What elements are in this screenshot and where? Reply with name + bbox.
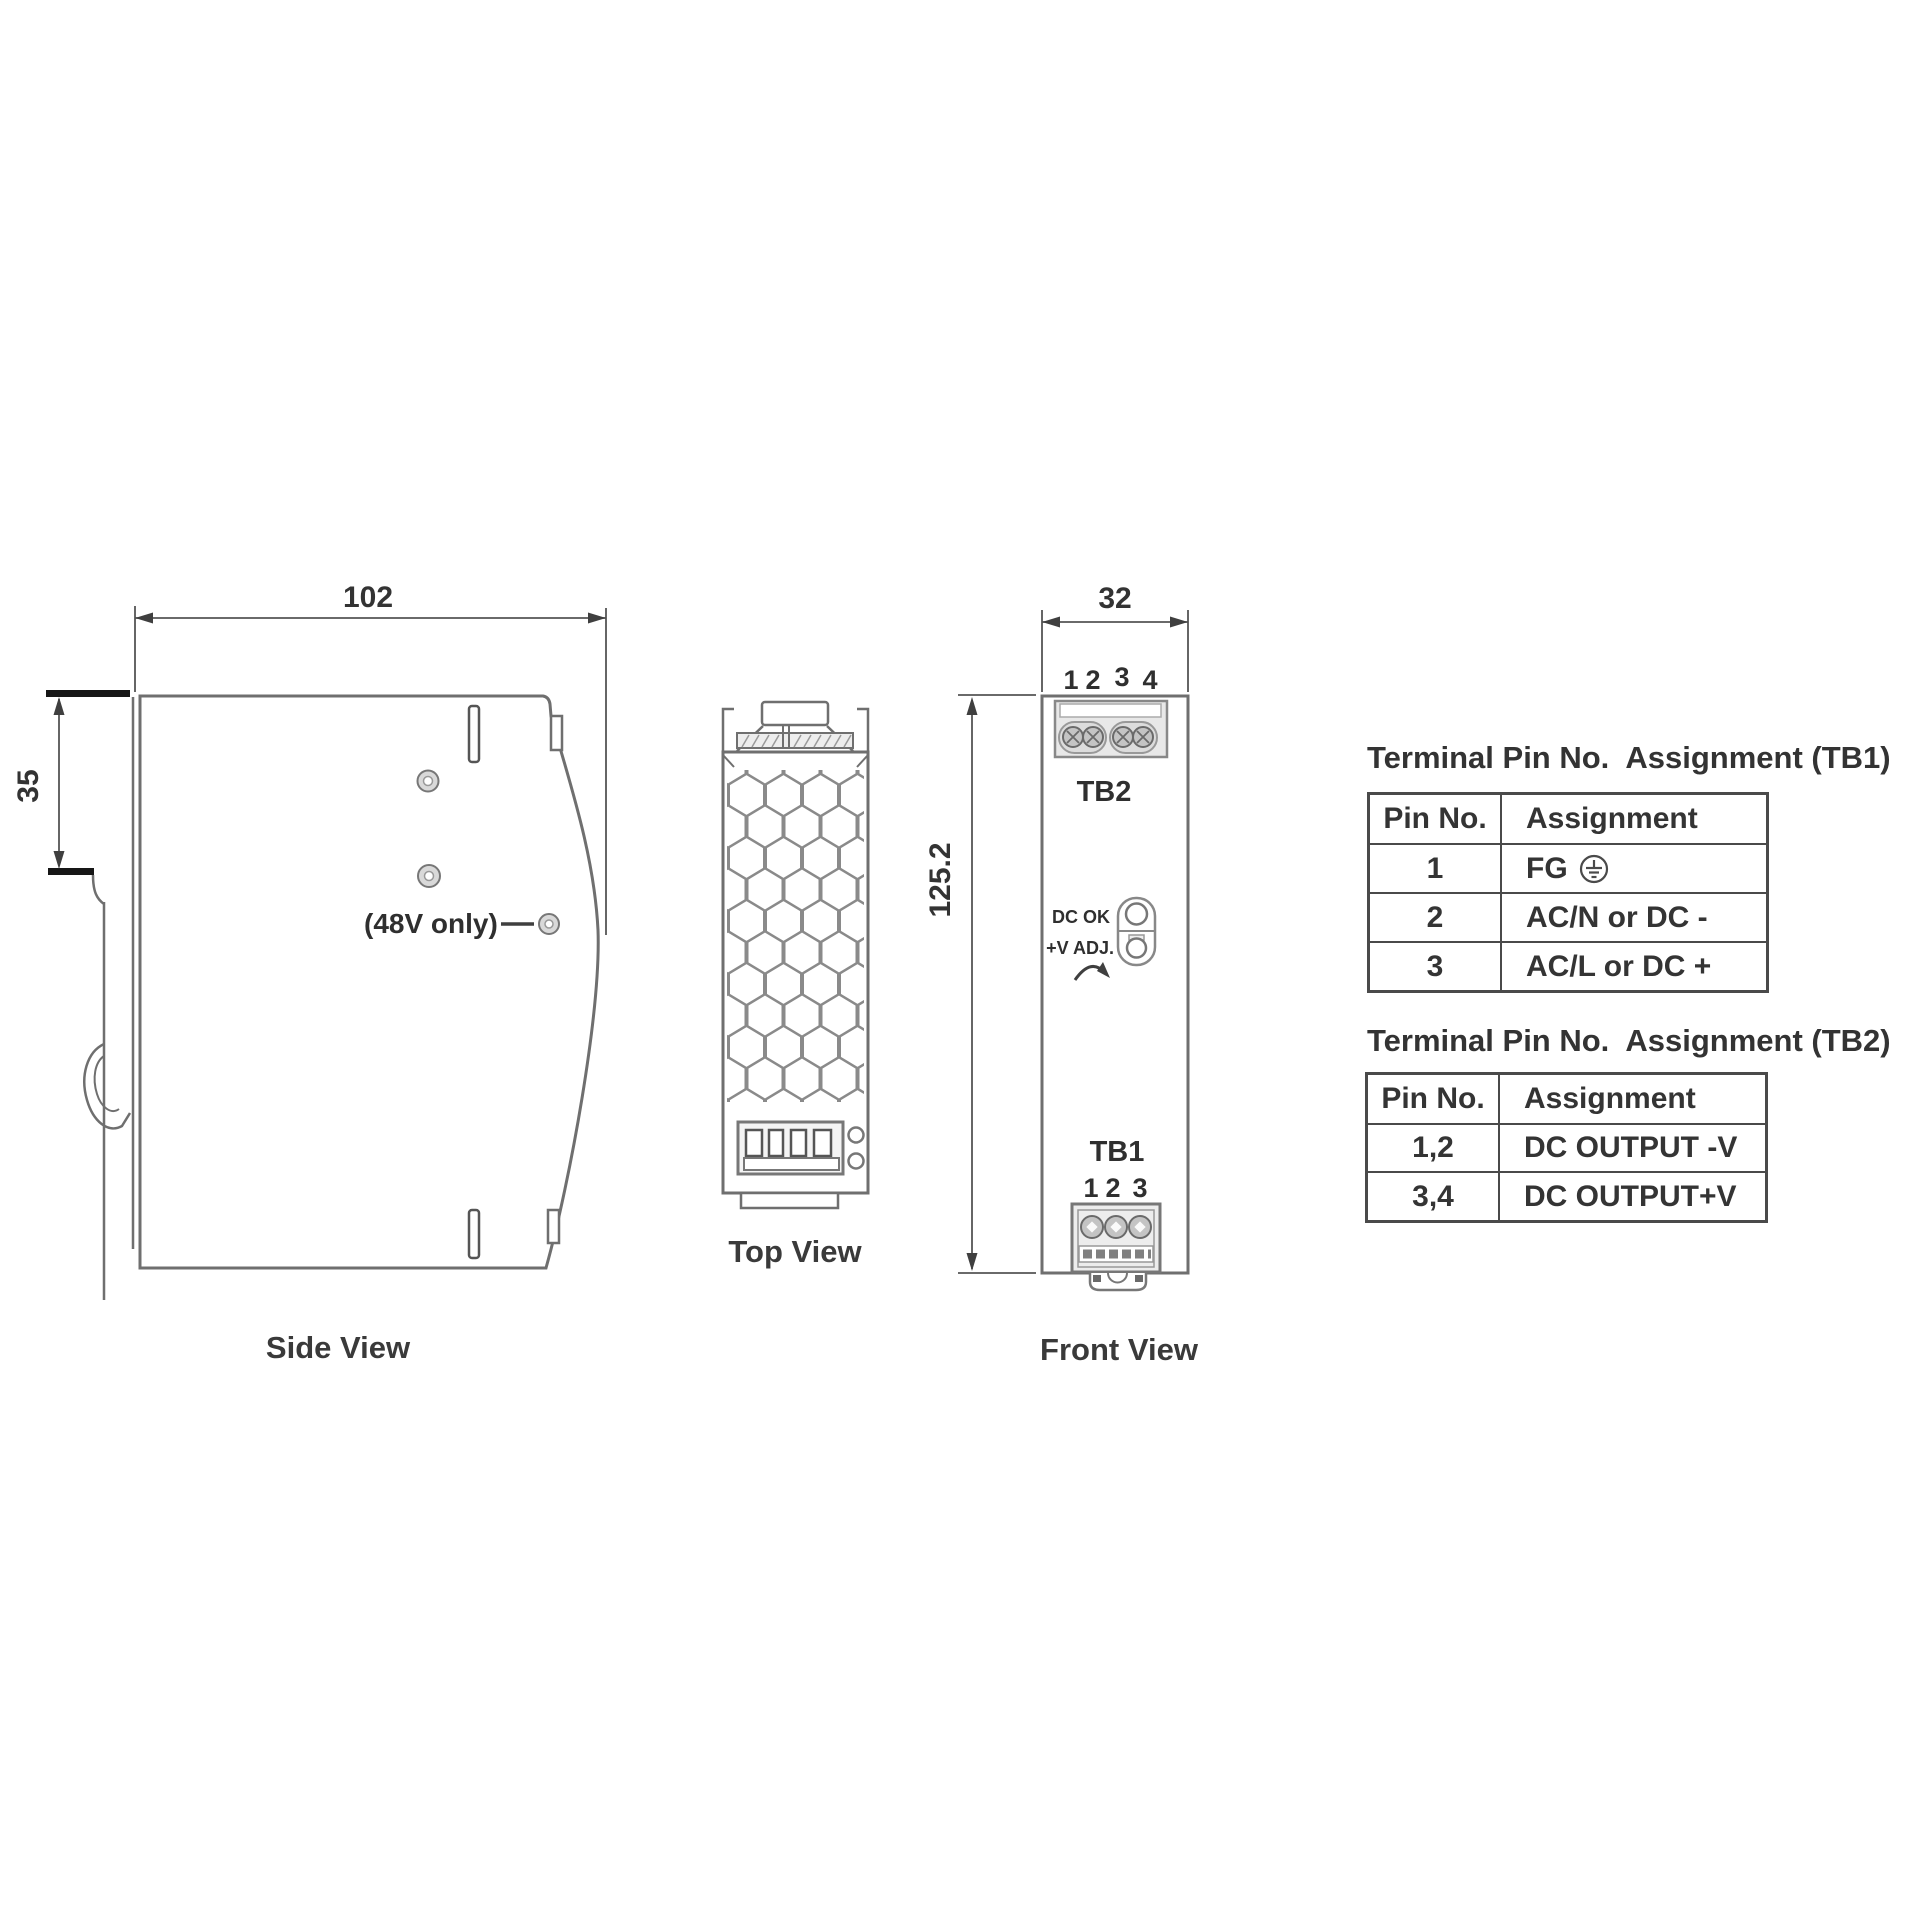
top-view-drawing: Top View (723, 702, 868, 1269)
din-rail-flange-top (46, 690, 130, 697)
tb1-label: TB1 (1090, 1136, 1145, 1168)
tb2-row-assignment: DC OUTPUT -V (1498, 1123, 1765, 1171)
side-view-label: Side View (266, 1330, 411, 1365)
front-view-label: Front View (1040, 1332, 1199, 1367)
side-case-tab-bottom (548, 1210, 559, 1243)
svg-text:2: 2 (1085, 665, 1100, 695)
tb1-header-pin: Pin No. (1370, 795, 1500, 843)
protective-earth-icon (1578, 853, 1610, 885)
svg-text:2: 2 (1105, 1173, 1120, 1203)
case-screw-48v (539, 914, 559, 934)
svg-text:4: 4 (1142, 665, 1157, 695)
v-adj-potentiometer (1127, 939, 1146, 958)
note-48v-only: (48V only) (364, 908, 498, 939)
tb1-row-pin: 3 (1370, 941, 1500, 990)
svg-text:35: 35 (12, 769, 45, 802)
front-view-drawing: 32 125.2 1 2 3 4 (924, 582, 1199, 1367)
side-vent-slot-top (469, 706, 479, 762)
side-view-drawing: (48V only) 102 35 Side View (12, 581, 606, 1365)
front-view-bottom-tab (1090, 1273, 1146, 1290)
tb1-pin-numbers: 1 2 3 (1083, 1173, 1147, 1203)
tb1-row-assignment: AC/L or DC + (1500, 941, 1766, 990)
tb1-row-assignment: AC/N or DC - (1500, 892, 1766, 941)
tb1-pin-assignment-table: Pin No. Assignment 1 FG 2 AC/N or DC - 3… (1367, 792, 1769, 993)
svg-text:DC OK: DC OK (1052, 907, 1110, 927)
top-view-label: Top View (728, 1234, 862, 1269)
tb2-row-assignment: DC OUTPUT+V (1498, 1171, 1765, 1220)
svg-text:32: 32 (1098, 582, 1131, 615)
tb1-table-title: Terminal Pin No. Assignment (TB1) (1367, 740, 1891, 776)
svg-text:+V ADJ.: +V ADJ. (1046, 938, 1114, 958)
dimension-35: 35 (12, 697, 65, 869)
tb2-header-assignment: Assignment (1498, 1075, 1765, 1123)
din-rail-flange-bottom (48, 868, 94, 875)
side-case-tab-top (551, 716, 562, 750)
tb2-row-pin: 1,2 (1368, 1123, 1498, 1171)
case-screw-middle (418, 865, 440, 887)
tb1-row-pin: 1 (1370, 843, 1500, 892)
svg-text:3: 3 (1132, 1173, 1147, 1203)
svg-text:125.2: 125.2 (924, 842, 957, 917)
power-supply-mechanical-drawing: (48V only) 102 35 Side View (0, 0, 1920, 1920)
svg-text:102: 102 (343, 581, 393, 614)
tb2-row-pin: 3,4 (1368, 1171, 1498, 1220)
tb1-row-pin: 2 (1370, 892, 1500, 941)
case-screw-upper (418, 771, 439, 792)
tb2-header-pin: Pin No. (1368, 1075, 1498, 1123)
side-view-case-outline (140, 696, 598, 1268)
tb2-label: TB2 (1077, 776, 1132, 808)
tb1-terminal-block (1072, 1204, 1160, 1272)
top-view-bottom-tab (741, 1193, 838, 1208)
tb2-pin-assignment-table: Pin No. Assignment 1,2 DC OUTPUT -V 3,4 … (1365, 1072, 1768, 1223)
tb1-header-assignment: Assignment (1500, 795, 1766, 843)
tb2-pin-numbers: 1 2 3 4 (1063, 662, 1157, 695)
tb2-table-title: Terminal Pin No. Assignment (TB2) (1367, 1023, 1891, 1059)
tb1-row-assignment: FG (1500, 843, 1766, 892)
honeycomb-vent-pattern (727, 770, 864, 1102)
tb2-terminal-block (1055, 701, 1167, 757)
dimension-125-2: 125.2 (924, 695, 1036, 1273)
dc-ok-led (1126, 904, 1147, 925)
tb1-fg-text: FG (1526, 852, 1568, 886)
svg-text:3: 3 (1114, 662, 1129, 692)
tb1-screws (1081, 1216, 1151, 1238)
side-vent-slot-bottom (469, 1210, 479, 1258)
svg-text:1: 1 (1063, 665, 1078, 695)
svg-text:1: 1 (1083, 1173, 1098, 1203)
